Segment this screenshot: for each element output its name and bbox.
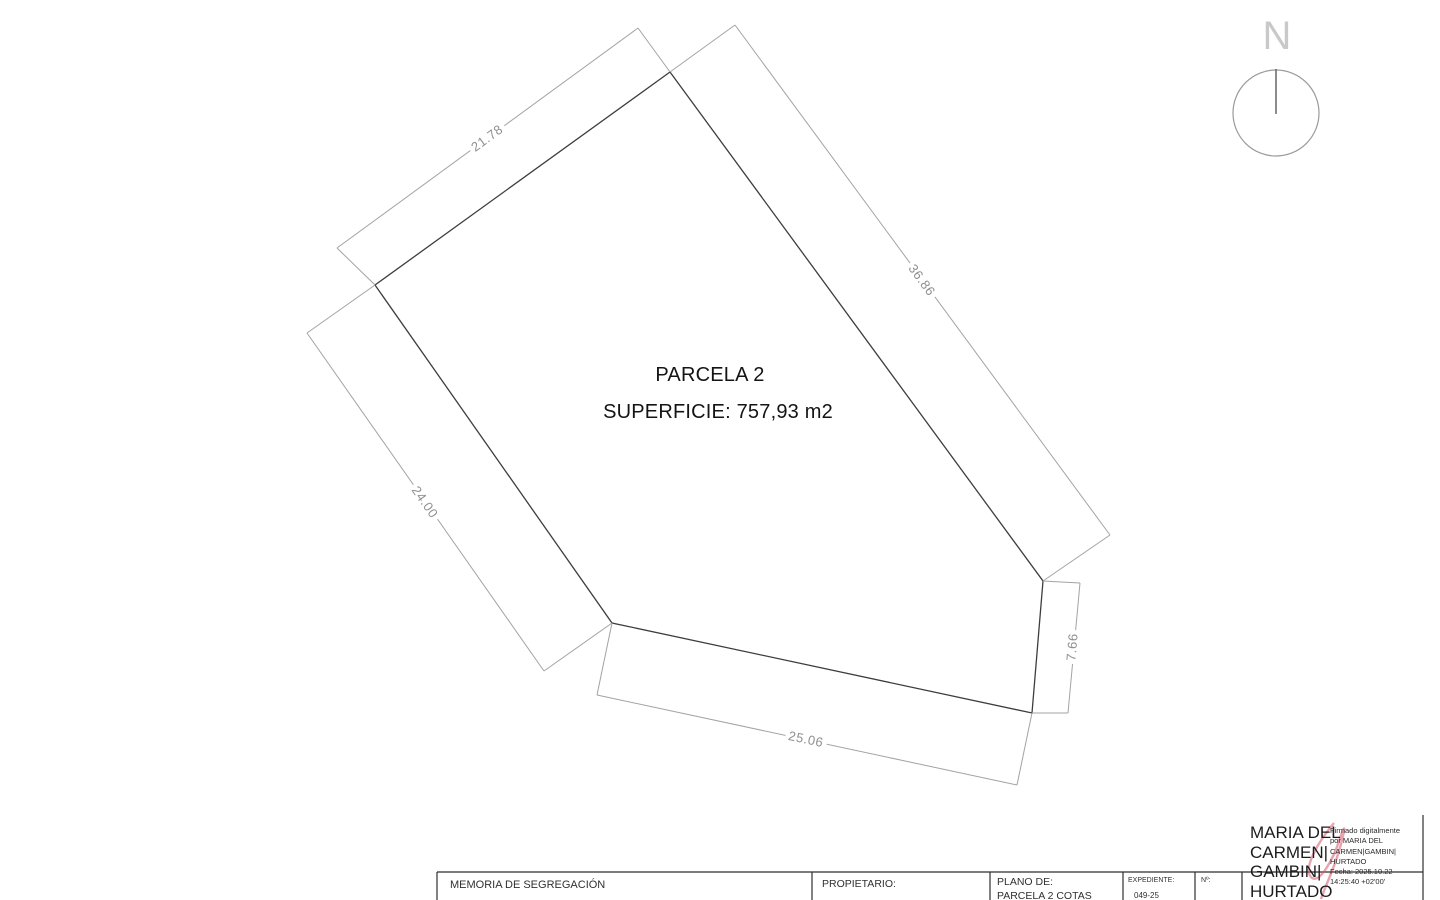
signature-details-line: por MARIA DEL bbox=[1330, 836, 1400, 846]
signature-name-line: CARMEN| bbox=[1250, 843, 1341, 863]
dimension-label-lower-right: 7.66 bbox=[1063, 630, 1081, 665]
title-block-expediente-label: EXPEDIENTE: bbox=[1128, 877, 1174, 884]
north-label: N bbox=[1256, 14, 1298, 59]
signature-name: MARIA DEL CARMEN| GAMBIN| HURTADO bbox=[1250, 823, 1341, 900]
parcel-title: PARCELA 2 bbox=[655, 364, 764, 387]
survey-drawing bbox=[0, 0, 1440, 900]
title-block-numero-label: Nº: bbox=[1201, 877, 1211, 884]
signature-details-line: Firmado digitalmente bbox=[1330, 826, 1400, 836]
signature-name-line: MARIA DEL bbox=[1250, 823, 1341, 843]
signature-details-line: Fecha: 2025.10.22 bbox=[1330, 867, 1400, 877]
parcel-boundary bbox=[375, 72, 1043, 713]
north-compass-icon bbox=[1233, 69, 1319, 156]
signature-details-line: 14:25:40 +02'00' bbox=[1330, 877, 1400, 887]
plan-sheet: N 21.78 36.86 24.00 25.06 7.66 PARCELA 2… bbox=[0, 0, 1440, 900]
signature-name-line: GAMBIN| bbox=[1250, 862, 1341, 882]
title-block-plano-label: PLANO DE: bbox=[997, 876, 1053, 888]
signature-name-line: HURTADO bbox=[1250, 882, 1341, 900]
title-block-expediente-value: 049-25 bbox=[1134, 891, 1159, 900]
signature-details-line: HURTADO bbox=[1330, 857, 1400, 867]
title-block-memoria: MEMORIA DE SEGREGACIÓN bbox=[450, 879, 605, 891]
signature-details-line: CARMEN|GAMBIN| bbox=[1330, 847, 1400, 857]
title-block-plano-value: PARCELA 2 COTAS bbox=[997, 890, 1092, 900]
signature-details: Firmado digitalmente por MARIA DEL CARME… bbox=[1330, 826, 1400, 888]
title-block-propietario-label: PROPIETARIO: bbox=[822, 878, 896, 890]
parcel-surface: SUPERFICIE: 757,93 m2 bbox=[603, 401, 833, 424]
